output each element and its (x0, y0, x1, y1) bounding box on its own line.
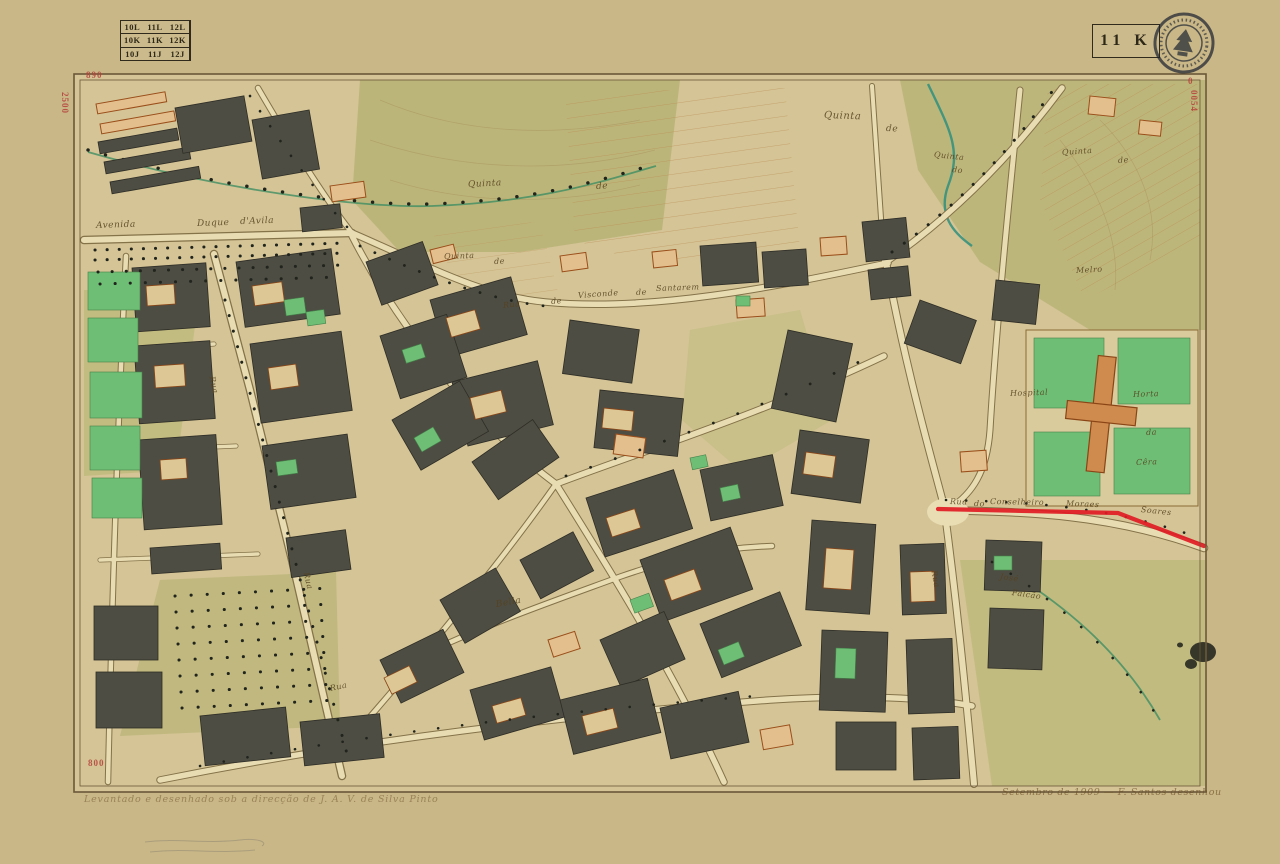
street-label: de (636, 287, 647, 297)
corner-mark-right-vertical: 0054 (1189, 90, 1199, 112)
surveyor-inscription: Levantado e desenhado sob a direcção de … (84, 794, 438, 805)
street-label: Santarem (656, 282, 700, 293)
street-label: da (1146, 428, 1157, 437)
grid-cell: 11K (144, 34, 167, 46)
street-label: Avenida (96, 220, 136, 231)
corner-mark-top-left: 890 (86, 70, 103, 80)
grid-cell: 10L (121, 21, 144, 33)
street-label: Rua (503, 299, 521, 310)
hospital-complex (1026, 330, 1198, 506)
street-label: Conselheiro (990, 497, 1044, 507)
street-label: do (952, 165, 964, 175)
date-signature-inscription: Setembro de 1909 — F. Santos desenhou (1002, 787, 1222, 798)
grid-index-row: 10K 11K 12K (121, 34, 189, 47)
grid-cell: 12K (166, 34, 189, 46)
sheet-code-label: 11 K (1100, 32, 1152, 50)
grid-cell: 10K (121, 34, 144, 46)
map-drawing (0, 0, 1280, 864)
street-label: Cêra (1136, 457, 1158, 467)
street-label: Quinta (444, 251, 475, 261)
sheet-grid-index: 10L 11L 12L 10K 11K 12K 10J 11J 12J (120, 20, 191, 61)
street-label: de (1118, 155, 1129, 165)
street-label: d'Avila (240, 216, 274, 227)
corner-mark-top-right: 0 (1188, 76, 1194, 86)
grid-cell: 11J (144, 48, 167, 60)
street-label: Melro (1076, 265, 1103, 275)
archive-stamp-icon (1148, 7, 1220, 79)
grid-cell: 12J (166, 48, 189, 60)
grid-cell: 12L (166, 21, 189, 33)
street-label: Moraes (1066, 499, 1100, 509)
grid-index-row: 10J 11J 12J (121, 48, 189, 60)
street-label: do (974, 499, 985, 508)
street-label: de (551, 296, 563, 306)
map-sheet-scan: AvenidaDuqued'AvilaRuadeViscondedeSantar… (0, 0, 1280, 864)
street-label: Quinta (824, 110, 862, 122)
grid-index-row: 10L 11L 12L (121, 21, 189, 34)
pencil-note (145, 839, 264, 852)
street-label: Hospital (1010, 388, 1048, 398)
street-label: de (886, 124, 898, 134)
street-label: Rua (950, 497, 968, 507)
corner-mark-left-vertical: 2500 (60, 92, 70, 114)
street-label: de (596, 181, 609, 192)
street-label: Horta (1133, 389, 1159, 399)
street-label: Duque (197, 218, 230, 229)
grid-cell: 11L (144, 21, 167, 33)
grid-cell: 10J (121, 48, 144, 60)
corner-mark-bottom-left: 800 (88, 758, 105, 768)
street-label: de (494, 257, 505, 266)
street-label: Quinta (468, 178, 502, 190)
